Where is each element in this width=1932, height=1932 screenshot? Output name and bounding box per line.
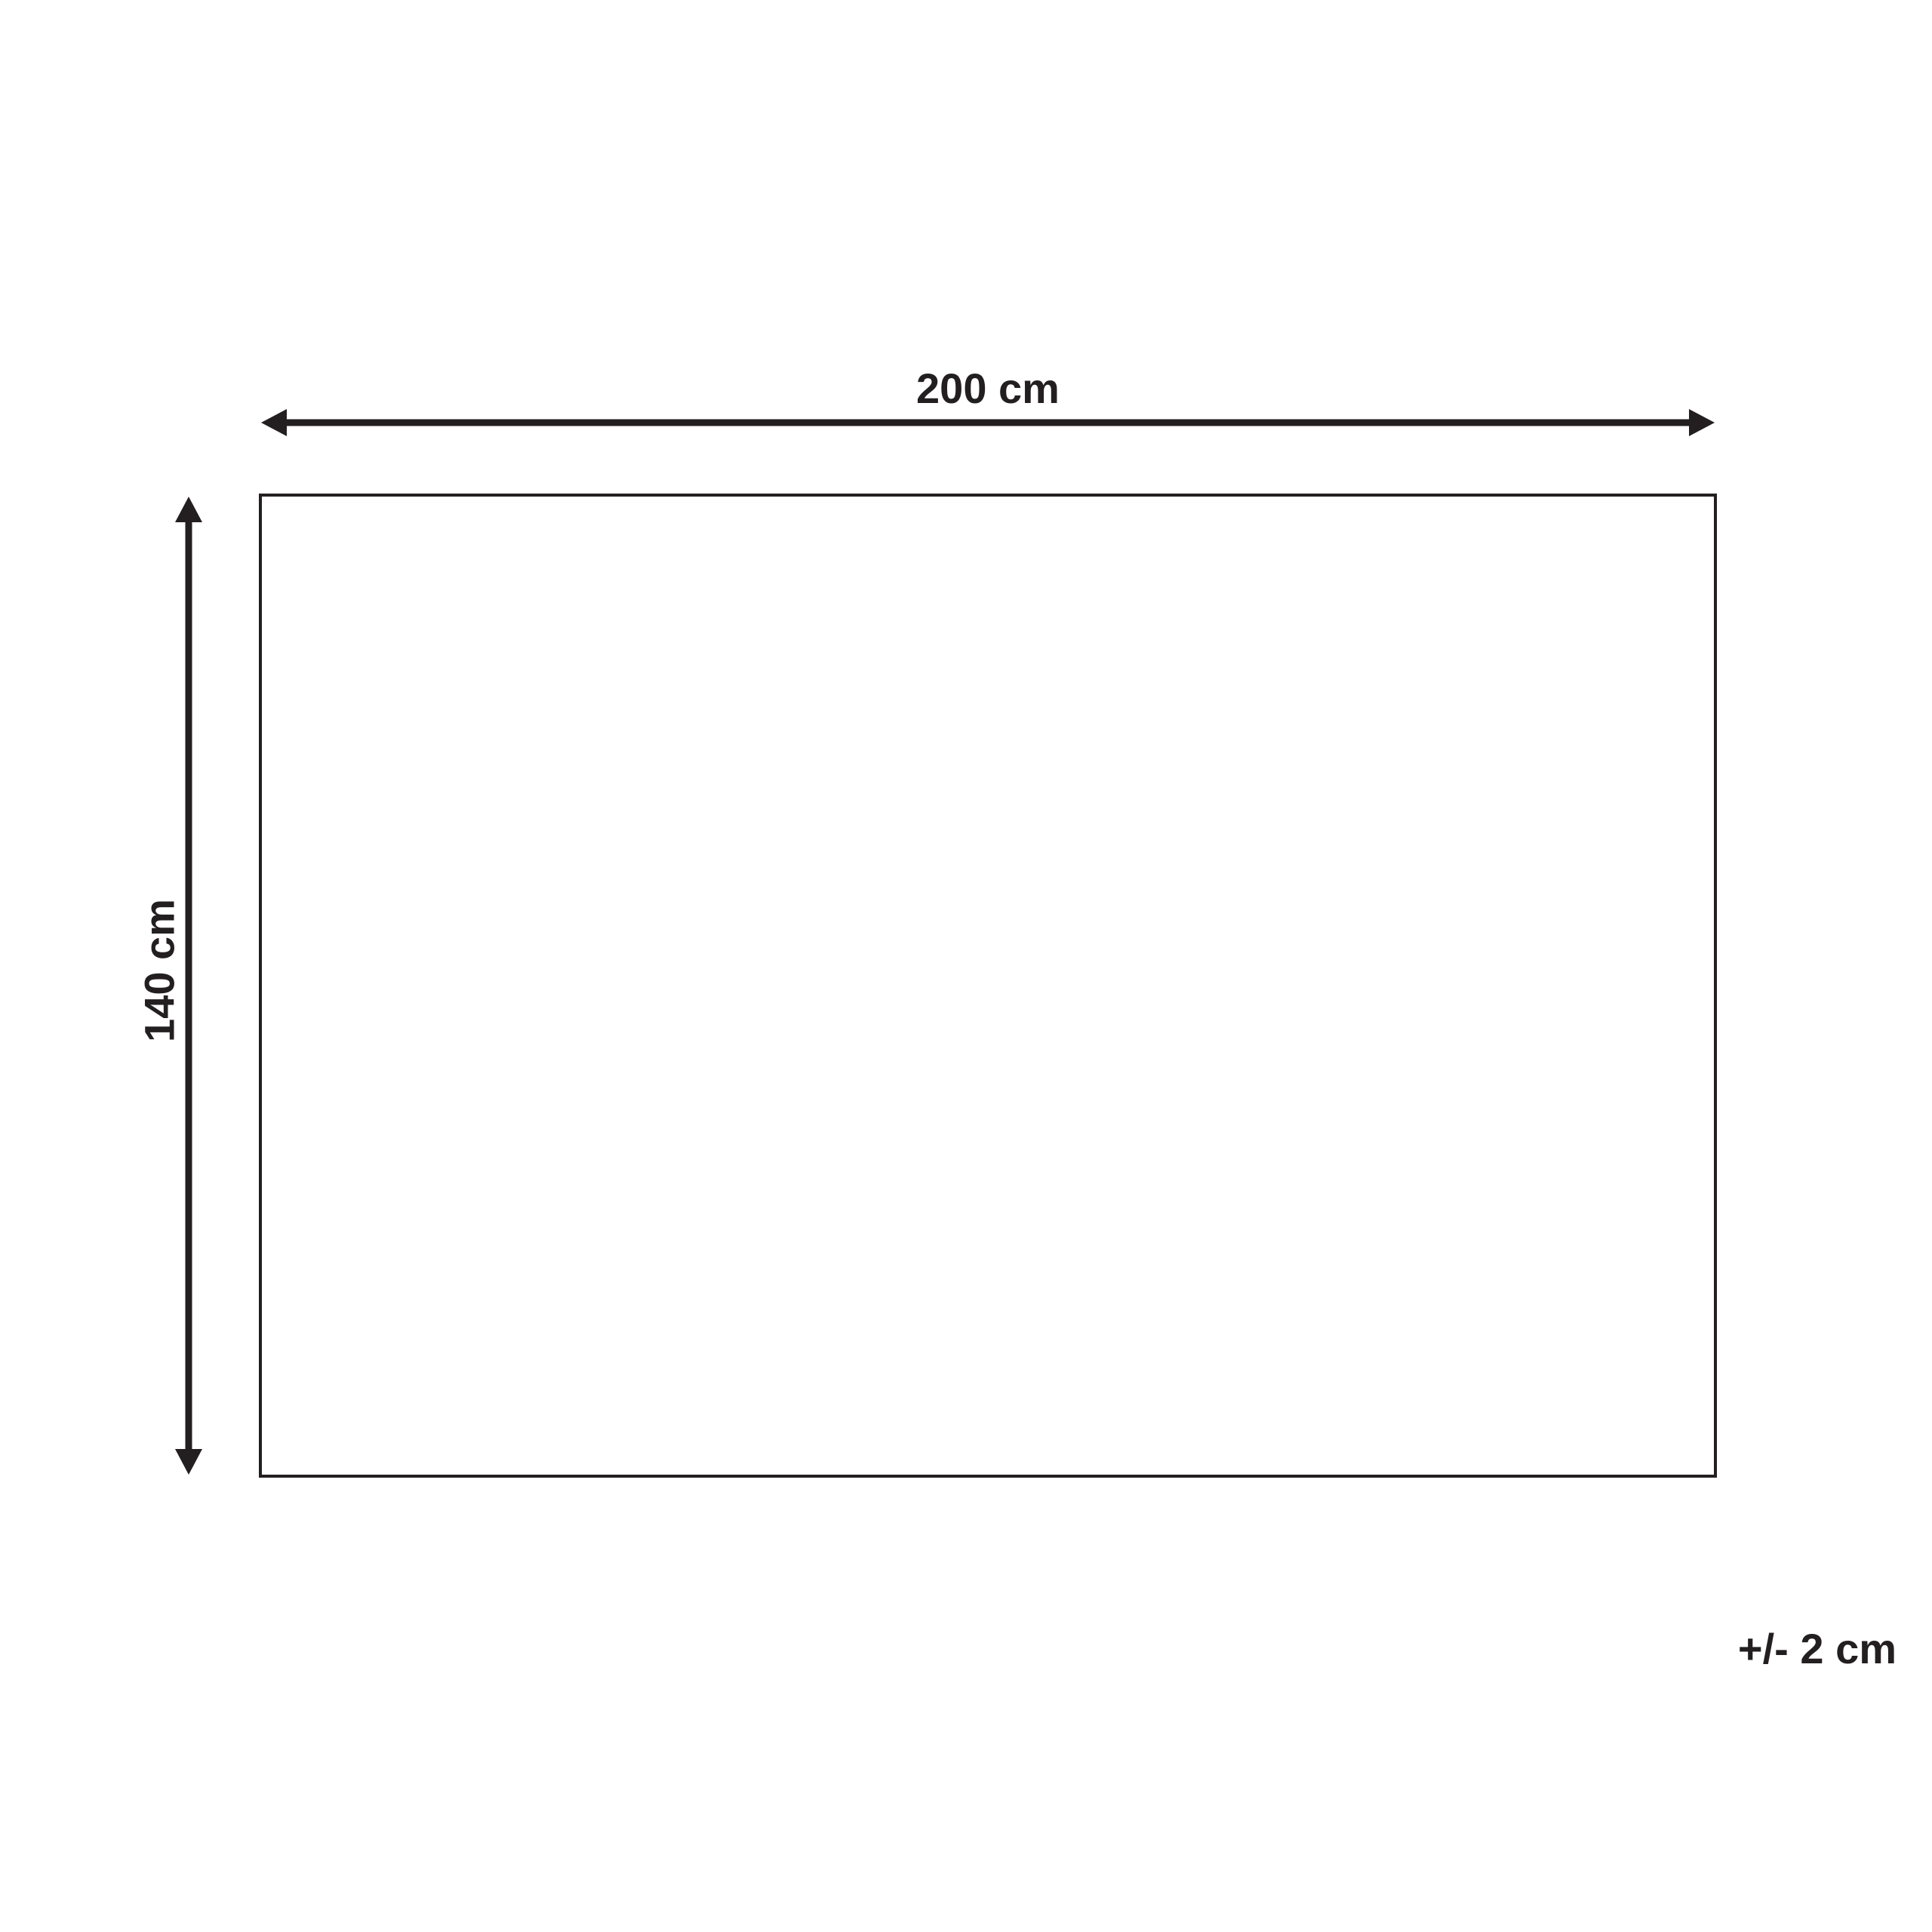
- height-arrow-top-head-icon: [175, 497, 202, 522]
- width-dimension-label: 200 cm: [260, 364, 1715, 413]
- tolerance-label: +/- 2 cm: [1738, 1624, 1897, 1673]
- diagram-shapes: [0, 0, 1932, 1932]
- dimension-diagram: 200 cm 140 cm +/- 2 cm: [0, 0, 1932, 1932]
- product-outline-rect: [260, 495, 1715, 1476]
- width-arrow-right-head-icon: [1689, 409, 1715, 436]
- width-arrow: [261, 409, 1715, 436]
- width-arrow-left-head-icon: [261, 409, 287, 436]
- height-dimension-label: 140 cm: [135, 899, 184, 1042]
- height-arrow-bottom-head-icon: [175, 1449, 202, 1475]
